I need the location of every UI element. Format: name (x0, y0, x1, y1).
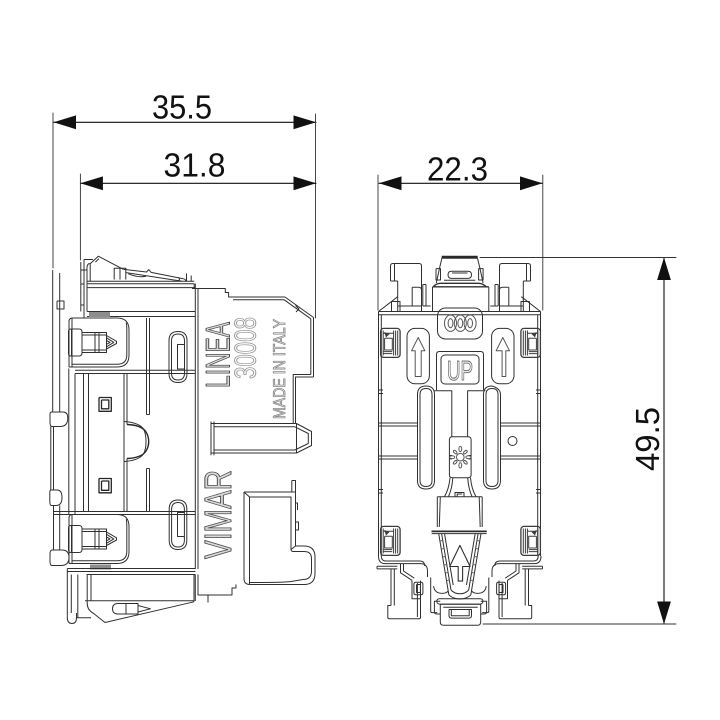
svg-text:VIMAR: VIMAR (198, 470, 240, 559)
svg-text:30008: 30008 (230, 317, 263, 379)
svg-text:UP: UP (447, 355, 473, 386)
svg-text:49.5: 49.5 (630, 407, 667, 471)
svg-text:MADE IN ITALY: MADE IN ITALY (270, 319, 289, 419)
svg-text:35.5: 35.5 (152, 90, 212, 127)
svg-text:31.8: 31.8 (164, 148, 226, 185)
